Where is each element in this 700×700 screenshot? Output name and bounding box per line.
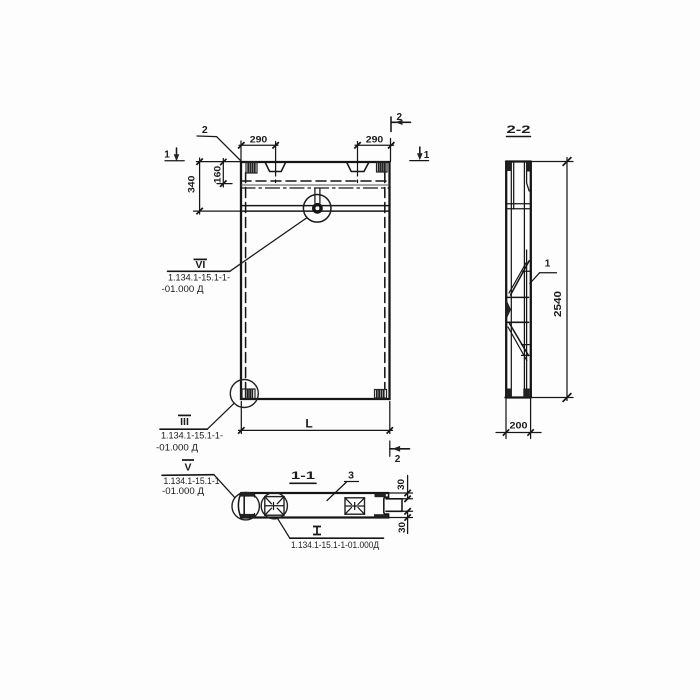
svg-text:30: 30 (397, 522, 408, 533)
svg-text:2: 2 (202, 124, 208, 136)
svg-text:2: 2 (395, 454, 401, 465)
svg-text:2-2: 2-2 (507, 124, 531, 136)
svg-text:VI: VI (195, 259, 205, 271)
svg-text:340: 340 (187, 176, 198, 194)
svg-text:1: 1 (424, 150, 430, 161)
svg-text:1: 1 (164, 150, 170, 161)
svg-text:1.134.1-15.1-1-: 1.134.1-15.1-1- (161, 431, 223, 441)
svg-text:2: 2 (397, 112, 403, 123)
svg-text:290: 290 (366, 135, 384, 146)
svg-text:L: L (305, 417, 312, 431)
svg-text:-01.000 Д: -01.000 Д (162, 486, 205, 496)
svg-text:1-1: 1-1 (291, 470, 315, 482)
svg-text:160: 160 (213, 166, 224, 184)
svg-text:1.134.1-15.1-1-01.000Д: 1.134.1-15.1-1-01.000Д (291, 540, 380, 550)
svg-text:30: 30 (396, 479, 407, 490)
svg-text:III: III (180, 416, 189, 428)
svg-text:290: 290 (250, 135, 268, 146)
svg-text:200: 200 (510, 421, 528, 432)
svg-text:2540: 2540 (553, 290, 564, 317)
svg-text:1: 1 (545, 259, 551, 270)
svg-text:-01.000 Д: -01.000 Д (162, 284, 205, 294)
svg-text:1.134.1-15.1-1: 1.134.1-15.1-1 (164, 476, 220, 486)
svg-text:V: V (184, 462, 191, 474)
svg-text:3: 3 (348, 470, 354, 482)
svg-text:-01.000 Д: -01.000 Д (156, 442, 199, 452)
svg-text:1.134.1-15.1-1-: 1.134.1-15.1-1- (168, 273, 230, 283)
